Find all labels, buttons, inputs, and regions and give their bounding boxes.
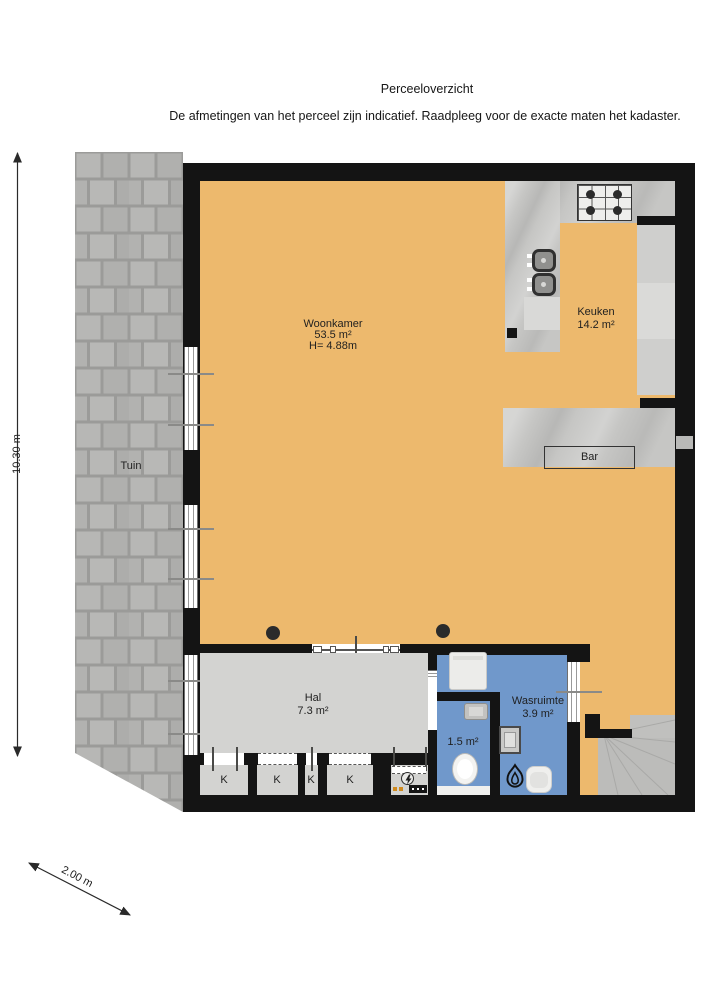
floorplan-canvas: Perceeloverzicht De afmetingen van het p… — [0, 0, 707, 1000]
dimension-arrows — [0, 0, 707, 1000]
height-dimension-label: 10.30 m — [11, 424, 23, 484]
